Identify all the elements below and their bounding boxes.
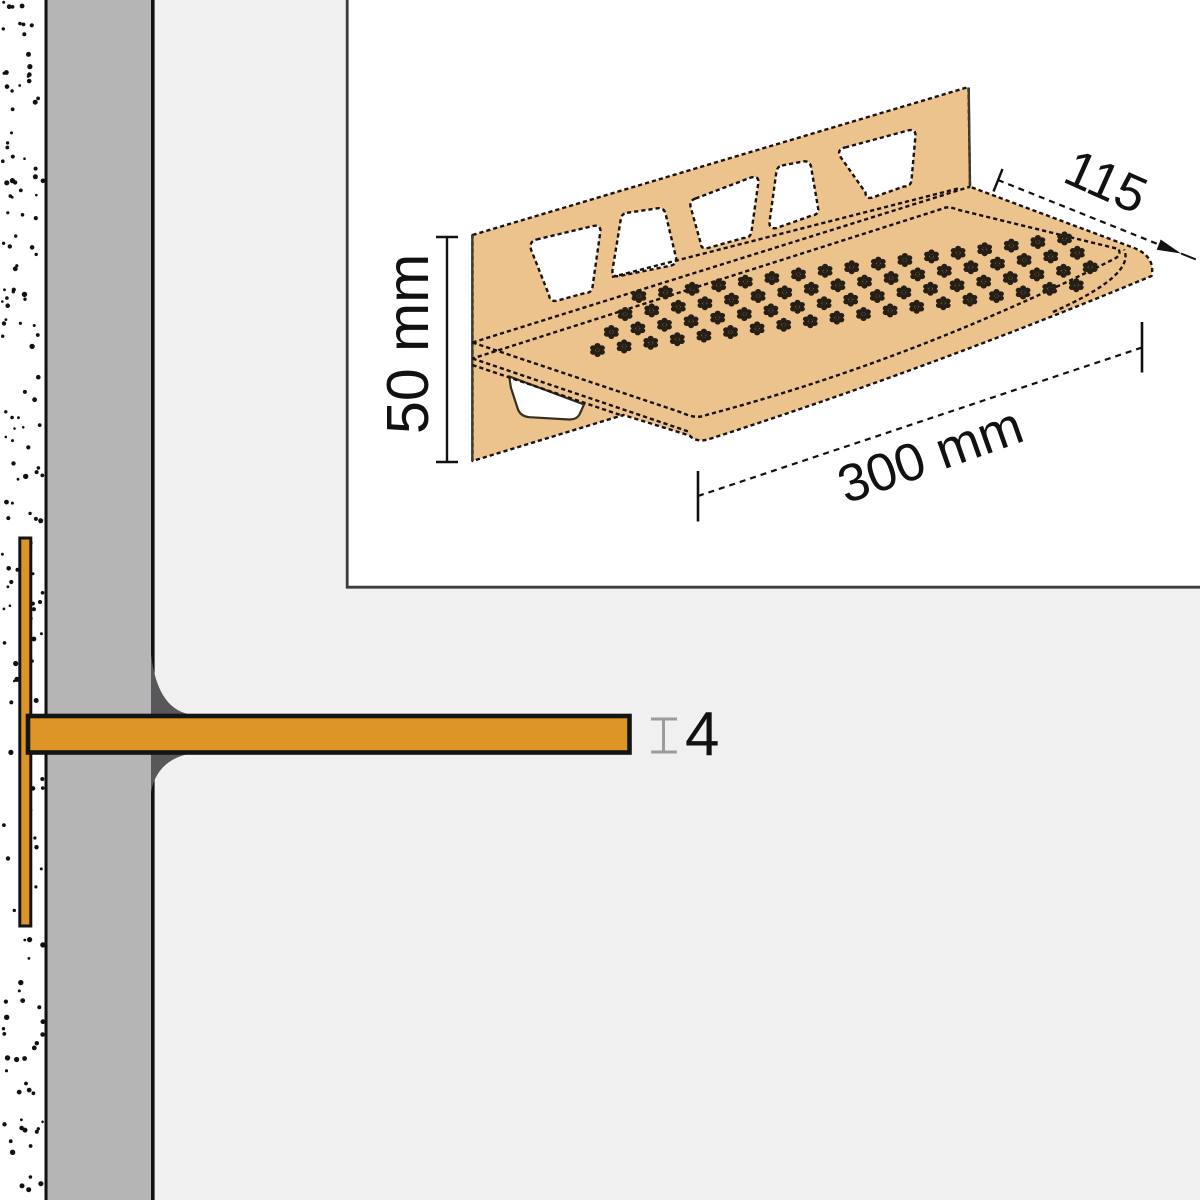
svg-text:50 mm: 50 mm (375, 254, 441, 434)
svg-text:4: 4 (685, 700, 719, 769)
